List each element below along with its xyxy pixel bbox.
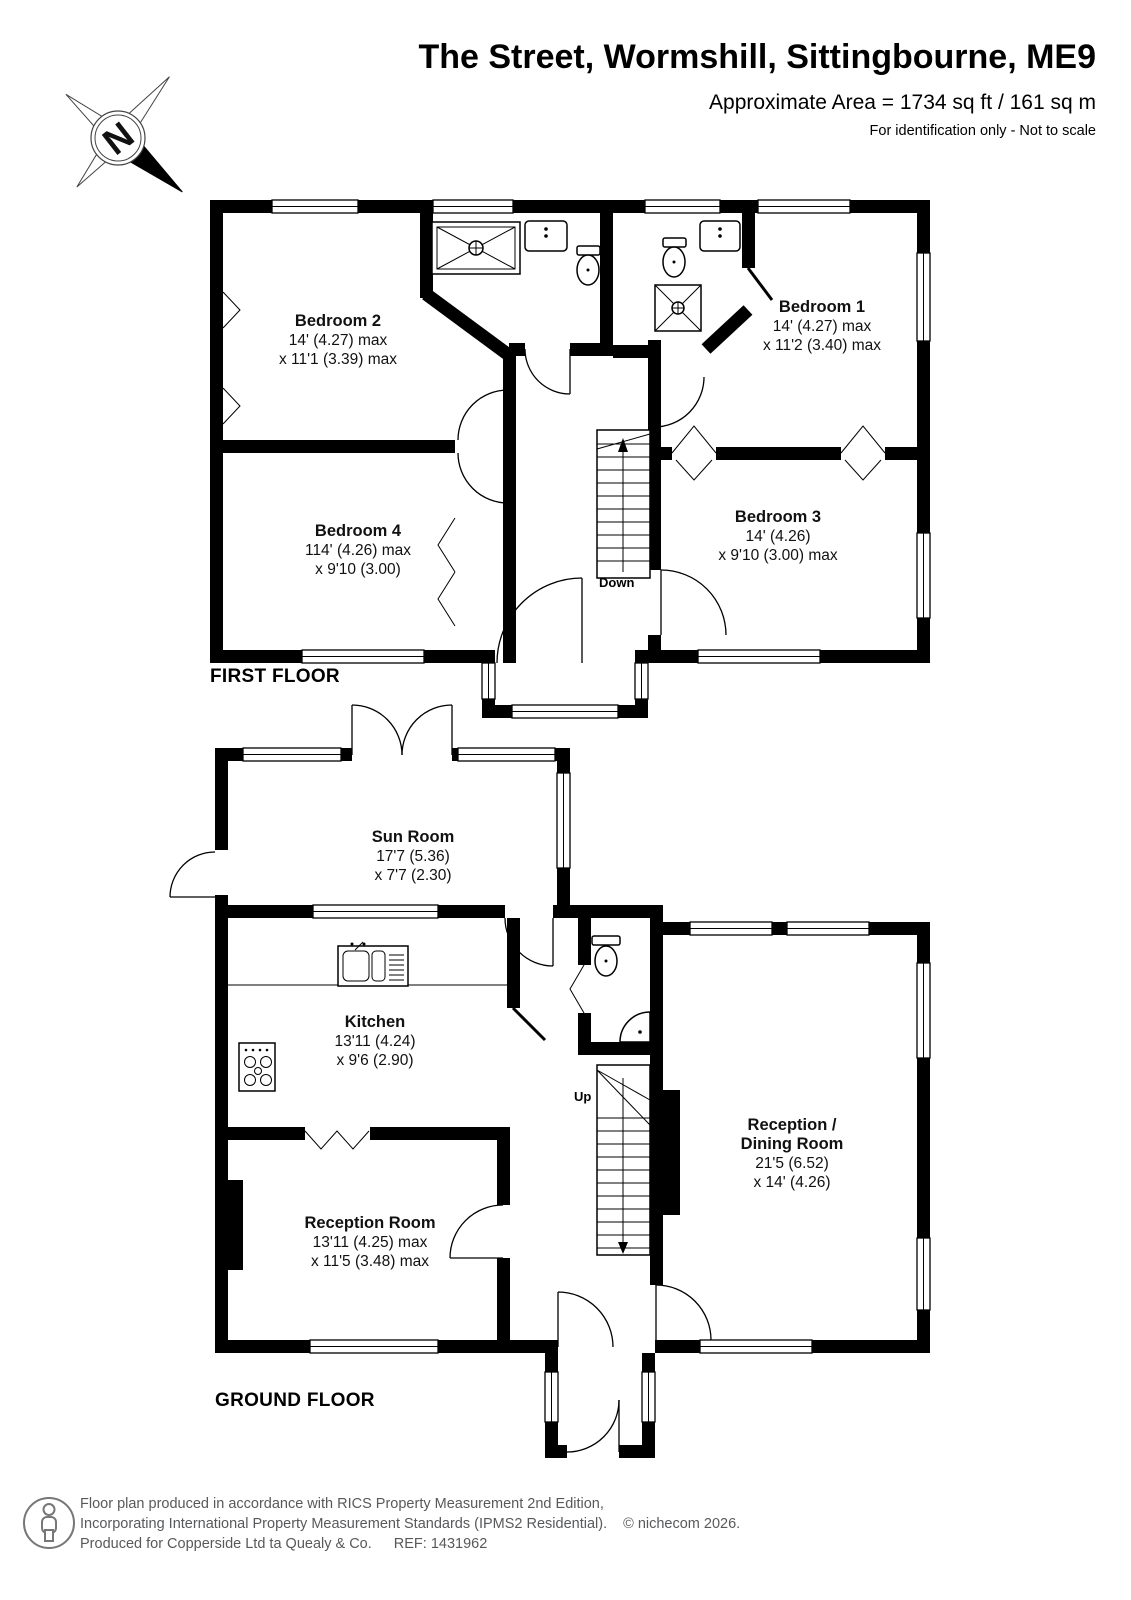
first-floor-label: FIRST FLOOR: [210, 666, 340, 688]
room-name: Bedroom 2: [279, 312, 397, 331]
compass-icon: N: [25, 33, 234, 241]
room-dim: x 11'2 (3.40) max: [763, 336, 881, 355]
floor-plan-graphic: N: [0, 0, 1131, 1600]
room-label-bedroom1: Bedroom 1 14' (4.27) max x 11'2 (3.40) m…: [763, 298, 881, 355]
room-name: Bedroom 1: [763, 298, 881, 317]
ensuite-toilet-icon: [663, 238, 686, 277]
shower-icon: [655, 285, 701, 331]
ground-floor-plan: [170, 705, 930, 1458]
footer-line1: Floor plan produced in accordance with R…: [80, 1494, 740, 1514]
stairs-up-label: Up: [574, 1089, 591, 1104]
room-dim: 17'7 (5.36): [372, 847, 455, 866]
room-dim: 114' (4.26) max: [305, 541, 411, 560]
room-label-reception-dining-room: Reception / Dining Room 21'5 (6.52) x 14…: [741, 1116, 844, 1192]
room-name: Bedroom 4: [305, 522, 411, 541]
first-floor-walls: [210, 200, 930, 718]
page-title: The Street, Wormshill, Sittingbourne, ME…: [418, 38, 1096, 77]
room-dim: x 9'10 (3.00): [305, 560, 411, 579]
room-name: Reception /: [741, 1116, 844, 1135]
room-dim: x 9'6 (2.90): [334, 1051, 415, 1070]
identification-note: For identification only - Not to scale: [870, 123, 1096, 139]
room-dim: x 11'1 (3.39) max: [279, 350, 397, 369]
footer-disclaimer: Floor plan produced in accordance with R…: [80, 1494, 740, 1554]
footer-produced-for: Produced for Copperside Ltd ta Quealy & …: [80, 1536, 372, 1552]
kitchen-sink-icon: [338, 942, 408, 986]
ground-floor-label: GROUND FLOOR: [215, 1390, 375, 1412]
room-dim: 21'5 (6.52): [741, 1154, 844, 1173]
room-name: Bedroom 3: [718, 508, 837, 527]
hob-icon: [239, 1043, 275, 1091]
room-dim: x 14' (4.26): [741, 1173, 844, 1192]
footer-copyright: © nichecom 2026.: [623, 1516, 740, 1532]
sink-icon: [525, 221, 567, 251]
room-dim: 14' (4.27) max: [279, 331, 397, 350]
room-name: Dining Room: [741, 1135, 844, 1154]
room-label-sun-room: Sun Room 17'7 (5.36) x 7'7 (2.30): [372, 828, 455, 885]
room-dim: 13'11 (4.24): [334, 1032, 415, 1051]
toilet-icon: [577, 246, 600, 285]
bathroom-fixtures: [432, 221, 740, 331]
room-dim: 13'11 (4.25) max: [304, 1233, 435, 1252]
ground-floor-stairs-icon: [597, 1065, 650, 1255]
stairs-down-label: Down: [599, 575, 634, 590]
wc-toilet-icon: [592, 936, 620, 976]
room-label-bedroom4: Bedroom 4 114' (4.26) max x 9'10 (3.00): [305, 522, 411, 579]
person-icon: [22, 1496, 76, 1550]
footer-ref: REF: 1431962: [394, 1536, 488, 1552]
room-dim: 14' (4.26): [718, 527, 837, 546]
room-dim: x 11'5 (3.48) max: [304, 1252, 435, 1271]
wc-fixtures: [592, 936, 650, 1042]
floorplan-page: N: [0, 0, 1131, 1600]
first-floor-stairs-icon: [597, 430, 650, 578]
room-label-reception-room: Reception Room 13'11 (4.25) max x 11'5 (…: [304, 1214, 435, 1271]
room-dim: x 7'7 (2.30): [372, 866, 455, 885]
room-name: Reception Room: [304, 1214, 435, 1233]
room-name: Kitchen: [334, 1013, 415, 1032]
room-label-bedroom2: Bedroom 2 14' (4.27) max x 11'1 (3.39) m…: [279, 312, 397, 369]
room-label-bedroom3: Bedroom 3 14' (4.26) x 9'10 (3.00) max: [718, 508, 837, 565]
room-name: Sun Room: [372, 828, 455, 847]
footer-line2: Incorporating International Property Mea…: [80, 1516, 607, 1532]
bath-icon: [432, 222, 520, 274]
approximate-area: Approximate Area = 1734 sq ft / 161 sq m: [709, 91, 1096, 115]
room-dim: x 9'10 (3.00) max: [718, 546, 837, 565]
ensuite-sink-icon: [700, 221, 740, 251]
first-floor-plan: [210, 200, 930, 718]
ground-floor-windows: [243, 748, 930, 1422]
room-dim: 14' (4.27) max: [763, 317, 881, 336]
room-label-kitchen: Kitchen 13'11 (4.24) x 9'6 (2.90): [334, 1013, 415, 1070]
corner-sink-icon: [620, 1012, 650, 1042]
